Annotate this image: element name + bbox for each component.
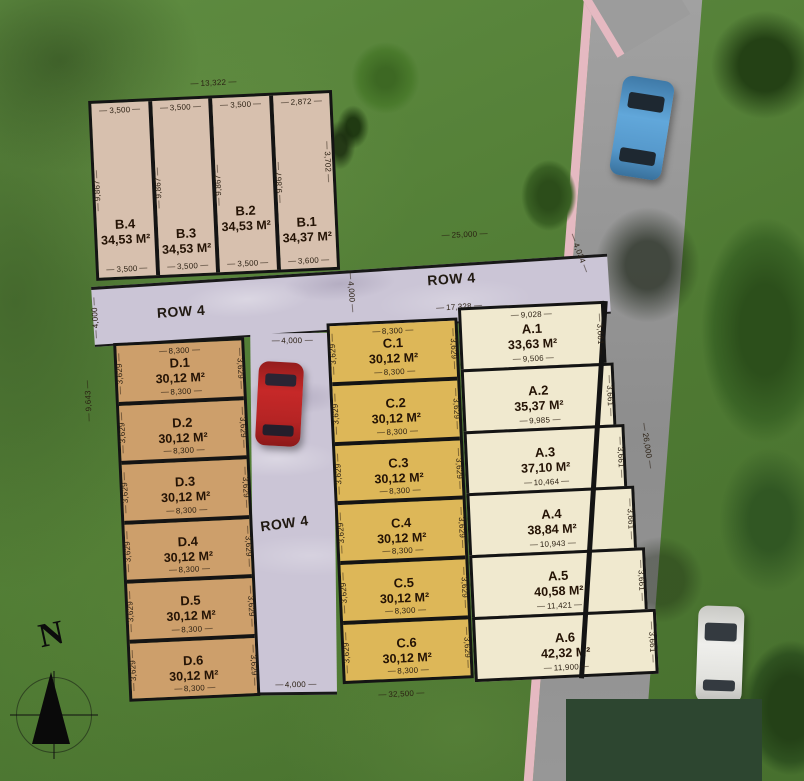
plot-id: A.6 [555, 631, 576, 647]
block-b: 3,500 9,867 B.4 34,53 M² 3,500 3,500 9,8… [88, 90, 340, 281]
plot-area: 30,12 M² [158, 430, 208, 446]
plot-C4: 3,629 3,629 C.4 30,12 M² 8,300 [338, 500, 466, 565]
plot-C3: 3,629 3,629 C.3 30,12 M² 8,300 [335, 440, 463, 505]
dim-label: 9,867 [152, 167, 163, 208]
dim-label: 3,661 [636, 559, 647, 600]
dim-label: 3,500 [160, 102, 201, 113]
plot-A4: 3,661 A.4 38,84 M² 10,943 [466, 486, 637, 559]
plot-area: 30,12 M² [163, 549, 213, 565]
block-d: 8,300 3,629 3,629 D.1 30,12 M² 8,300 3,6… [113, 337, 260, 702]
dim-label: 4,000 [275, 680, 316, 689]
dim-label: 8,300 [158, 345, 199, 356]
dim-label: 3,629 [462, 627, 473, 668]
dim-label: 8,300 [384, 605, 425, 616]
plot-id: B.3 [176, 226, 197, 242]
dim-label: 3,629 [238, 407, 249, 448]
dim-label: 3,629 [451, 388, 462, 429]
plot-B1: 2,872 9,867 3,702 B.1 34,37 M² 3,600 [273, 93, 337, 269]
dim-label: 4,000 [346, 271, 358, 313]
plot-area: 34,53 M² [221, 218, 271, 234]
row4-label-right: ROW 4 [427, 269, 476, 288]
plot-area: 30,12 M² [169, 667, 219, 683]
plot-area: 34,53 M² [101, 231, 151, 247]
row4-label-left: ROW 4 [156, 302, 205, 321]
dim-label: 9,867 [273, 162, 284, 203]
dim-label: 25,000 [441, 229, 487, 240]
plot-area: 30,12 M² [161, 489, 211, 505]
plot-A1: 9,028 3,661 A.1 33,63 M² 9,506 [458, 301, 607, 373]
plot-C1: 8,300 3,629 3,629 C.1 30,12 M² 8,300 [330, 321, 458, 386]
dim-label: 8,300 [372, 326, 413, 337]
dim-label: 9,506 [513, 353, 554, 364]
dim-label: 3,661 [605, 374, 616, 415]
dim-label: 3,629 [122, 531, 133, 572]
dim-label: 3,500 [99, 105, 140, 116]
dim-label: 3,702 [322, 141, 333, 182]
plot-D3: 3,629 3,629 D.3 30,12 M² 8,300 [122, 459, 250, 524]
plot-id: D.1 [169, 356, 190, 372]
plot-area: 30,12 M² [374, 470, 424, 486]
plot-id: C.1 [383, 336, 404, 352]
plot-id: C.6 [396, 635, 417, 651]
plot-area: 34,53 M² [162, 241, 212, 257]
car-rear-window [703, 679, 736, 692]
plot-id: B.2 [235, 204, 256, 220]
red-car [255, 361, 304, 447]
dim-label: 8,300 [166, 505, 207, 516]
plot-area: 35,37 M² [514, 398, 564, 414]
blank-info-panel [566, 699, 762, 781]
dim-label: 3,500 [220, 99, 261, 110]
plot-id: C.4 [391, 516, 412, 532]
dim-label: 3,629 [448, 328, 459, 369]
plot-id: C.5 [393, 575, 414, 591]
plot-D1: 8,300 3,629 3,629 D.1 30,12 M² 8,300 [116, 340, 244, 405]
dim-label: 32,500 [378, 688, 424, 699]
plot-id: A.3 [535, 445, 556, 461]
dim-label: 3,629 [114, 353, 125, 394]
dim-label: 2,872 [280, 96, 321, 107]
dim-label: 8,300 [376, 426, 417, 437]
dim-label: 9,867 [213, 165, 224, 206]
dim-label: 3,629 [117, 412, 128, 453]
dim-label: 10,464 [523, 477, 569, 488]
dim-label: 9,643 [83, 380, 94, 421]
plot-D6: 3,629 3,629 D.6 30,12 M² 8,300 [130, 638, 257, 699]
north-triangle-icon [32, 672, 70, 744]
plot-id: A.5 [548, 569, 569, 585]
plot-id: D.2 [172, 415, 193, 431]
car-rear-window [618, 147, 656, 167]
white-car [695, 605, 744, 704]
row4-label-mid: ROW 4 [259, 512, 309, 534]
plot-A5: 3,661 A.5 40,58 M² 11,421 [469, 547, 648, 620]
dim-label: 4,034 [568, 232, 591, 274]
dim-label: 3,661 [595, 313, 606, 354]
dim-label: 8,300 [374, 366, 415, 377]
plot-area: 37,10 M² [521, 459, 571, 475]
dim-label: 10,943 [530, 538, 576, 549]
dim-label: 3,629 [338, 572, 349, 613]
car-windshield [265, 373, 297, 387]
dim-label: 3,629 [330, 393, 341, 434]
plot-C2: 3,629 3,629 C.2 30,12 M² 8,300 [332, 380, 460, 445]
dim-label: 3,661 [625, 498, 636, 539]
dim-label: 3,629 [333, 453, 344, 494]
dim-label: 3,500 [227, 258, 268, 269]
dim-label: 3,629 [240, 466, 251, 507]
plot-area: 33,63 M² [508, 336, 558, 352]
dim-label: 8,300 [174, 683, 215, 694]
plot-B4: 3,500 9,867 B.4 34,53 M² 3,500 [91, 101, 159, 278]
dim-label: 9,985 [519, 415, 560, 426]
dim-label: 8,300 [379, 486, 420, 497]
dim-label: 3,500 [106, 264, 147, 275]
plot-area: 38,84 M² [527, 521, 577, 537]
plot-A6: 3,661 A.6 42,32 M² 11,900 [472, 609, 659, 682]
dim-label: 13,322 [190, 77, 236, 88]
plot-B2: 3,500 9,867 B.2 34,53 M² 3,500 [212, 96, 280, 273]
dim-label: 8,300 [160, 386, 201, 397]
plot-area: 34,37 M² [282, 229, 332, 245]
plot-id: D.4 [177, 534, 198, 550]
dim-label: 3,629 [456, 507, 467, 548]
dim-label: 3,629 [246, 585, 257, 626]
plot-area: 30,12 M² [380, 590, 430, 606]
north-arrow: N [15, 612, 110, 772]
plot-D5: 3,629 3,629 D.5 30,12 M² 8,300 [127, 578, 255, 643]
plot-id: A.4 [541, 507, 562, 523]
plot-B3: 3,500 9,867 B.3 34,53 M² 3,500 [152, 98, 220, 275]
dim-label: 4,000 [271, 336, 312, 345]
dim-label: 26,000 [639, 422, 655, 469]
site-plan-scene: 13,322 25,000 32,500 26,000 9,643 ROW 4 … [0, 0, 804, 781]
plot-id: D.3 [175, 475, 196, 491]
plot-area: 40,58 M² [534, 583, 584, 599]
plot-id: D.6 [183, 653, 204, 669]
dim-label: 11,421 [537, 600, 582, 611]
dim-label: 3,629 [459, 567, 470, 608]
plot-area: 30,12 M² [382, 650, 432, 666]
plot-id: B.4 [115, 217, 136, 233]
dim-label: 3,629 [328, 333, 339, 374]
plot-A2: 3,661 A.2 35,37 M² 9,985 [461, 362, 617, 434]
dim-label: 3,629 [235, 347, 246, 388]
plot-D2: 3,629 3,629 D.2 30,12 M² 8,300 [119, 400, 247, 465]
dim-label: 3,661 [647, 621, 658, 662]
plot-area: 30,12 M² [155, 370, 205, 386]
dim-label: 3,629 [341, 632, 352, 673]
dim-label: 3,629 [454, 447, 465, 488]
dim-label: 8,300 [387, 665, 428, 676]
plot-id: A.1 [522, 322, 543, 338]
north-label: N [35, 614, 67, 656]
dim-label: 8,300 [163, 445, 204, 456]
plot-C5: 3,629 3,629 C.5 30,12 M² 8,300 [340, 560, 468, 625]
plot-id: C.2 [385, 396, 406, 412]
plot-id: D.5 [180, 594, 201, 610]
plot-A3: 3,661 A.3 37,10 M² 10,464 [464, 424, 628, 496]
plot-area: 30,12 M² [369, 351, 419, 367]
plot-area: 30,12 M² [371, 410, 421, 426]
dim-label: 3,661 [615, 436, 626, 477]
dim-label: 9,867 [92, 170, 103, 211]
plot-id: C.3 [388, 456, 409, 472]
dim-label: 3,629 [125, 591, 136, 632]
plot-D4: 3,629 3,629 D.4 30,12 M² 8,300 [124, 519, 252, 584]
plot-area: 30,12 M² [166, 608, 216, 624]
car-rear-window [262, 424, 294, 437]
subdivision-plan: 13,322 25,000 32,500 26,000 9,643 ROW 4 … [0, 0, 804, 781]
dim-label: 8,300 [168, 564, 209, 575]
car-windshield [627, 92, 665, 113]
dim-label: 8,300 [382, 546, 423, 557]
plot-area: 30,12 M² [377, 530, 427, 546]
block-c: 8,300 3,629 3,629 C.1 30,12 M² 8,300 3,6… [326, 317, 473, 684]
dim-label: 3,629 [243, 526, 254, 567]
dim-label: 4,000 [89, 297, 101, 339]
car-windshield [704, 623, 737, 642]
dim-label: 9,028 [511, 309, 552, 320]
plot-C6: 3,629 3,629 C.6 30,12 M² 8,300 [343, 619, 470, 680]
dim-label: 3,600 [288, 255, 329, 266]
plot-id: A.2 [528, 383, 549, 399]
dim-label: 8,300 [171, 623, 212, 634]
dim-label: 3,629 [336, 513, 347, 554]
dim-label: 3,629 [120, 472, 131, 513]
dim-label: 3,629 [248, 645, 259, 686]
dim-label: 3,629 [128, 650, 139, 691]
plot-id: B.1 [296, 215, 317, 231]
dim-label: 3,500 [167, 261, 208, 272]
